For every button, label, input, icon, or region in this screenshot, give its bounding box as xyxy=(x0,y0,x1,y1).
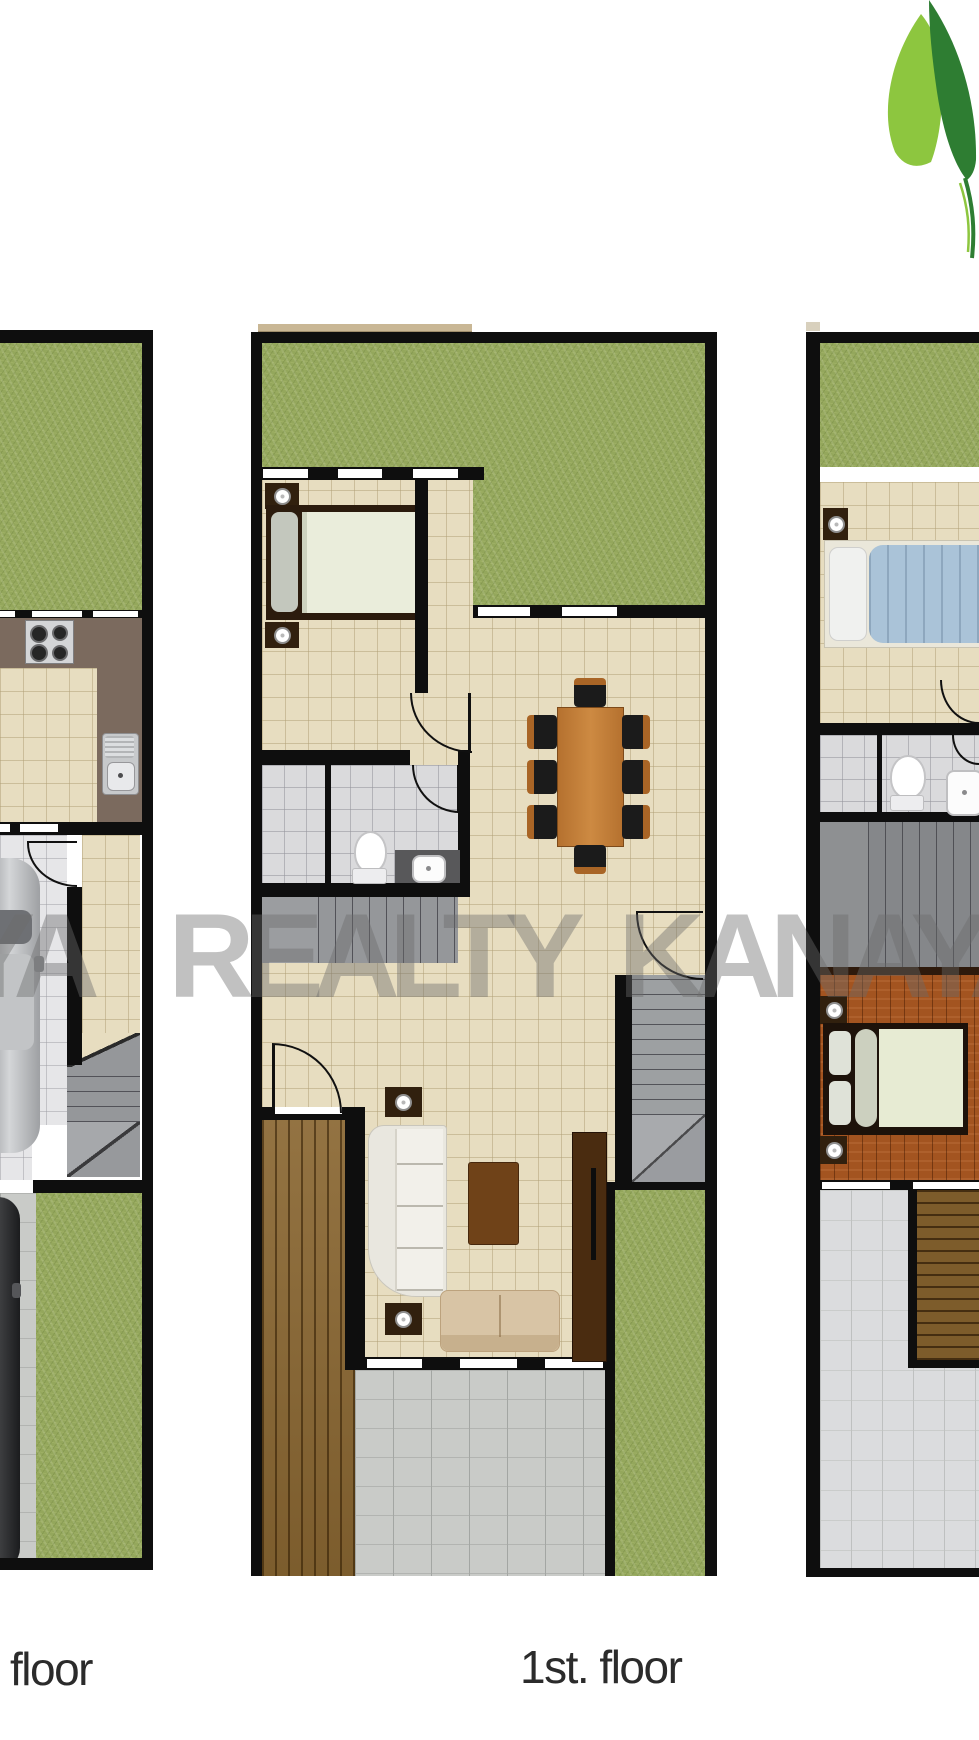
dining-chair xyxy=(622,715,650,749)
backyard-grass xyxy=(820,343,979,467)
patio-deck xyxy=(917,1190,979,1360)
bath-sink xyxy=(412,855,446,883)
floorplan-sheet: YA REALTY KANAYA floor 1st. floor xyxy=(0,0,979,1740)
window xyxy=(0,824,10,832)
bed-pillow xyxy=(829,547,867,641)
bed-blanket xyxy=(869,545,979,643)
toilet-tank xyxy=(890,795,924,811)
console-handle xyxy=(591,1168,596,1260)
nightstand xyxy=(820,1136,847,1164)
nightstand xyxy=(823,508,848,540)
lamp xyxy=(826,1142,843,1159)
bed-pillow xyxy=(829,1081,851,1125)
dining-chair xyxy=(527,715,557,749)
door-leaf xyxy=(272,1045,275,1109)
bed-bolster xyxy=(855,1029,877,1127)
stair-landing xyxy=(67,1122,140,1177)
single-bed xyxy=(824,540,979,648)
fence-strip xyxy=(806,322,820,331)
front-grass xyxy=(36,1193,142,1558)
lamp xyxy=(274,488,291,505)
backyard-grass xyxy=(0,343,142,610)
bath-sink xyxy=(946,770,979,816)
media-console xyxy=(572,1132,607,1362)
bed-pillows xyxy=(271,512,298,612)
window xyxy=(890,469,978,479)
window xyxy=(562,607,617,616)
dining-chair xyxy=(622,760,650,794)
lamp xyxy=(395,1094,412,1111)
dining-chair xyxy=(527,805,557,839)
bed-pillow xyxy=(829,1031,851,1075)
window xyxy=(822,1182,890,1189)
caption-middle-plan: 1st. floor xyxy=(520,1640,681,1694)
lamp xyxy=(828,516,845,533)
window xyxy=(0,611,15,617)
stairwell-landing xyxy=(632,1115,705,1182)
car-mirror xyxy=(12,1283,21,1298)
window xyxy=(367,1359,422,1368)
kitchen-sink xyxy=(102,733,139,795)
window xyxy=(263,469,308,478)
dining-chair xyxy=(527,760,557,794)
door-leaf xyxy=(27,841,77,843)
backyard-grass xyxy=(262,343,705,467)
nightstand xyxy=(265,622,299,648)
bath-partition xyxy=(877,735,882,812)
bed-mattress xyxy=(879,1029,963,1127)
driveway-pavers xyxy=(355,1370,605,1576)
stove xyxy=(25,620,74,664)
window xyxy=(413,469,458,478)
bedroom-side-wall xyxy=(415,467,428,693)
window xyxy=(820,469,868,479)
window xyxy=(460,1359,517,1368)
watermark-text: REALTY xyxy=(168,896,574,1016)
window xyxy=(93,611,138,617)
dining-table xyxy=(557,707,624,847)
window xyxy=(478,607,530,616)
bed-mattress xyxy=(302,512,415,613)
coffee-table xyxy=(468,1162,519,1245)
side-table xyxy=(385,1303,422,1335)
window xyxy=(338,469,382,478)
toilet-tank xyxy=(352,868,387,884)
door-leaf xyxy=(457,765,460,813)
leaf-logo xyxy=(845,0,979,262)
watermark-text: KANAYA xyxy=(618,896,979,1016)
window xyxy=(20,824,58,832)
stairs-down xyxy=(67,1067,140,1122)
toilet xyxy=(354,831,387,873)
caption-left-plan: floor xyxy=(10,1642,92,1696)
loveseat xyxy=(440,1290,560,1352)
double-bed xyxy=(823,1023,968,1135)
window xyxy=(32,611,82,617)
deck-frame xyxy=(908,1183,917,1368)
car-driveway xyxy=(0,1197,20,1570)
backyard-grass-right xyxy=(473,467,705,605)
dining-chair xyxy=(574,845,606,874)
deck-frame xyxy=(908,1360,979,1368)
kitchen-floor xyxy=(0,668,97,822)
sofa-white xyxy=(368,1125,447,1297)
side-grass-strip xyxy=(615,1190,705,1576)
watermark-text: YA xyxy=(0,896,89,1016)
lamp xyxy=(274,627,291,644)
window xyxy=(913,1182,979,1189)
side-table xyxy=(385,1087,422,1117)
double-bed xyxy=(266,505,415,620)
door-leaf xyxy=(468,693,471,753)
terrace-deck xyxy=(262,1120,355,1576)
lamp xyxy=(395,1311,412,1328)
dining-chair xyxy=(622,805,650,839)
deck-side-wall xyxy=(345,1107,365,1370)
shower-partition xyxy=(325,765,331,883)
hall-floor xyxy=(82,835,140,1033)
toilet xyxy=(890,755,926,799)
dining-chair xyxy=(574,678,606,707)
fence-strip xyxy=(258,324,472,332)
